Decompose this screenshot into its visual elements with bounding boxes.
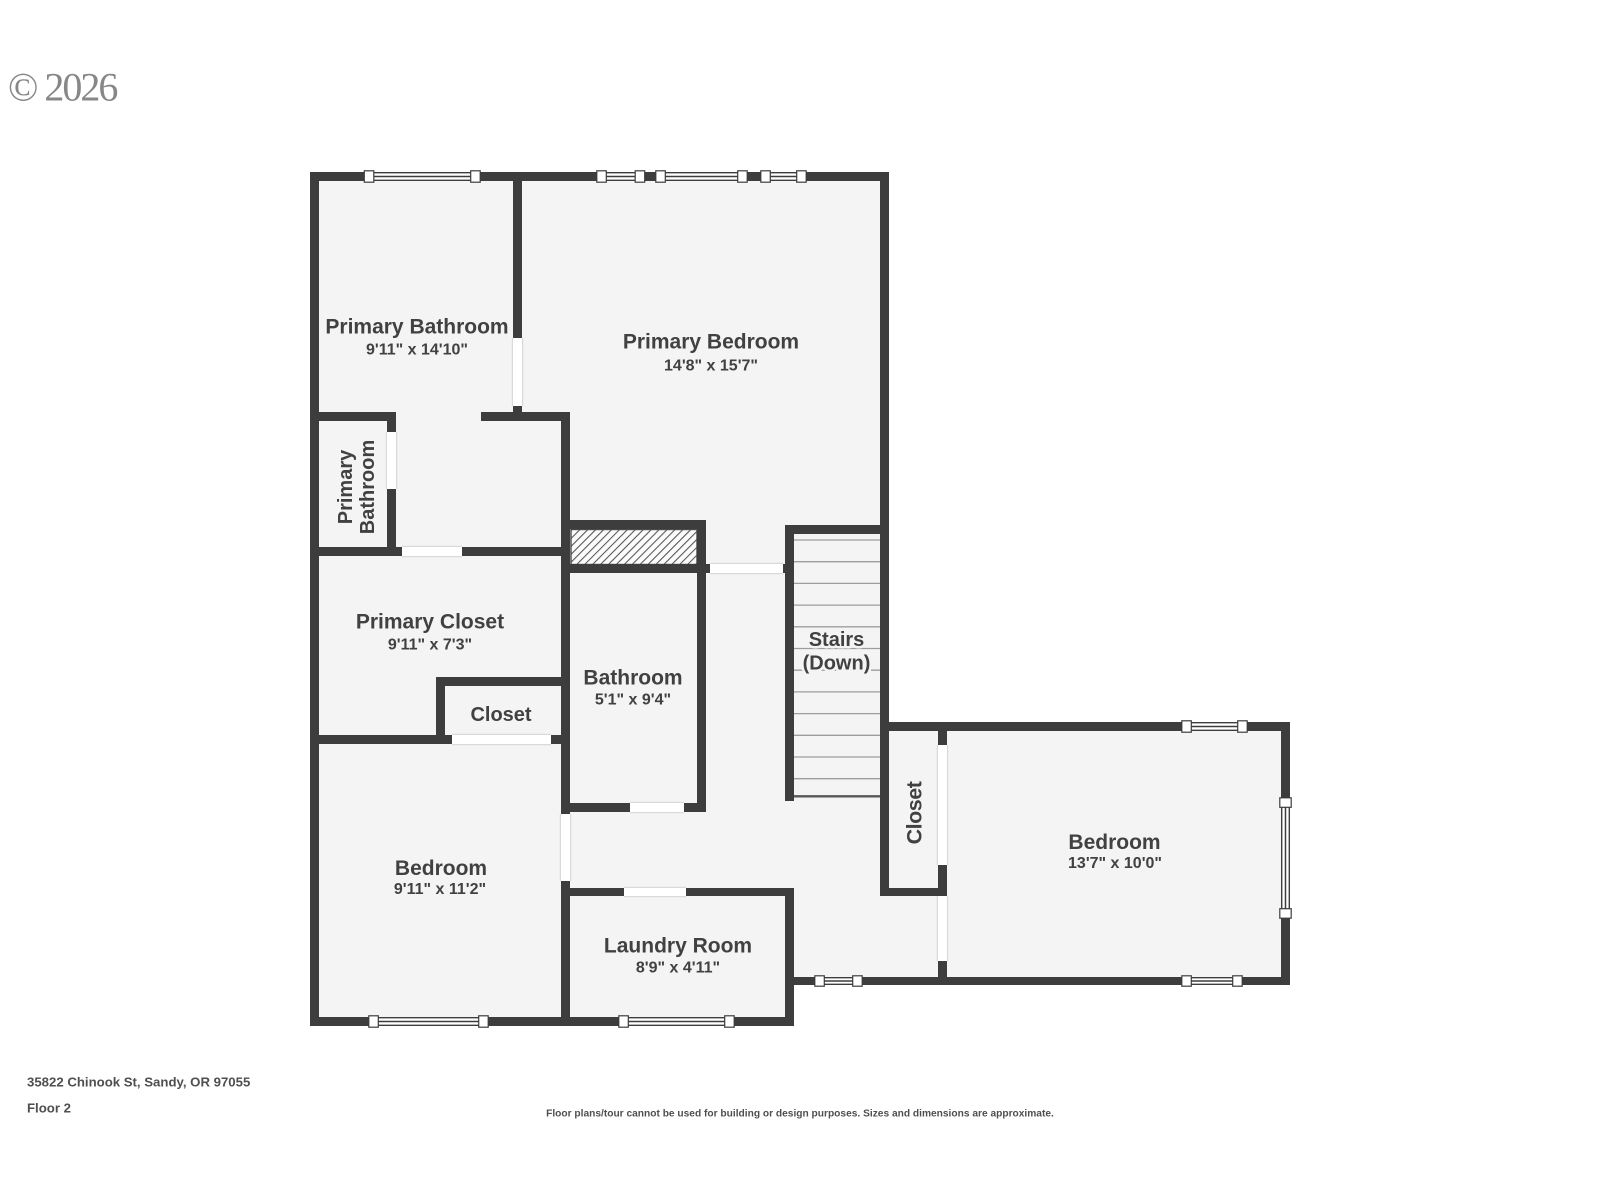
svg-text:9'11" x 14'10": 9'11" x 14'10": [366, 342, 468, 359]
svg-text:Floor plans/tour cannot be use: Floor plans/tour cannot be used for buil…: [546, 1109, 1054, 1120]
svg-text:Primary Bedroom: Primary Bedroom: [623, 330, 799, 353]
svg-text:Primary Bathroom: Primary Bathroom: [325, 315, 508, 338]
svg-text:Bedroom: Bedroom: [1068, 831, 1160, 854]
svg-text:35822 Chinook St, Sandy, OR 97: 35822 Chinook St, Sandy, OR 97055: [27, 1074, 250, 1089]
svg-text:13'7" x 10'0": 13'7" x 10'0": [1068, 855, 1162, 872]
svg-text:Floor 2: Floor 2: [27, 1100, 71, 1115]
svg-text:Closet: Closet: [470, 704, 531, 726]
svg-text:14'8" x 15'7": 14'8" x 15'7": [664, 358, 758, 375]
svg-text:Bathroom: Bathroom: [583, 666, 682, 689]
svg-text:Bedroom: Bedroom: [395, 857, 487, 880]
svg-text:Primary Closet: Primary Closet: [356, 610, 504, 633]
svg-text:Stairs: Stairs: [809, 629, 865, 651]
svg-text:Laundry Room: Laundry Room: [604, 934, 752, 957]
svg-text:Primary: Primary: [335, 449, 357, 524]
svg-text:(Down): (Down): [803, 653, 871, 675]
svg-text:© 2026: © 2026: [8, 65, 117, 110]
svg-text:Closet: Closet: [903, 781, 927, 844]
svg-text:Bathroom: Bathroom: [357, 440, 379, 534]
svg-text:8'9" x 4'11": 8'9" x 4'11": [636, 960, 720, 977]
svg-text:9'11" x 7'3": 9'11" x 7'3": [388, 637, 472, 654]
svg-text:5'1" x 9'4": 5'1" x 9'4": [595, 692, 671, 709]
svg-text:9'11" x 11'2": 9'11" x 11'2": [394, 881, 486, 898]
